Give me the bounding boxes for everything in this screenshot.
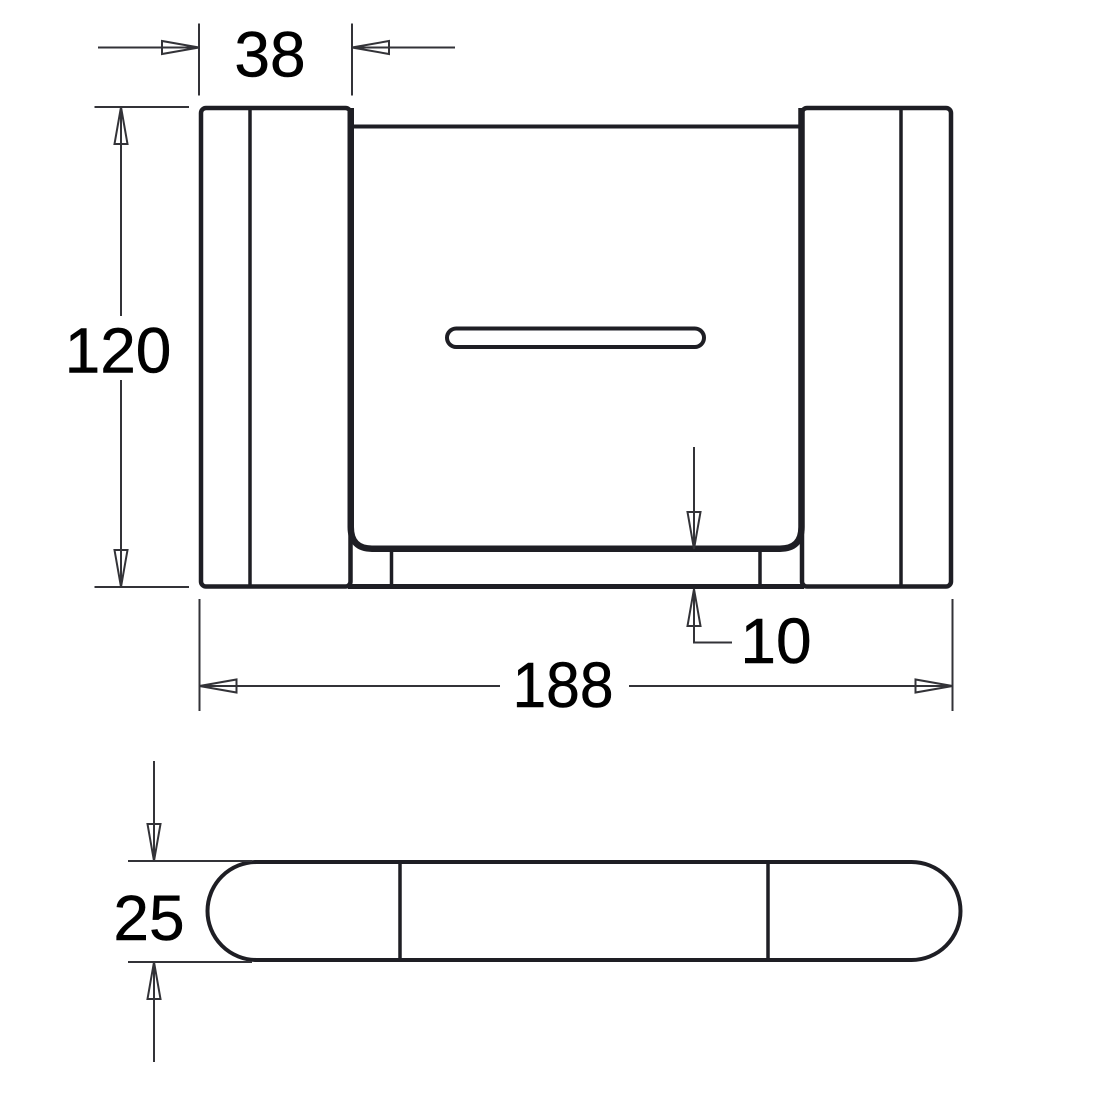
svg-text:10: 10: [740, 605, 811, 677]
svg-text:188: 188: [513, 649, 614, 721]
svg-text:120: 120: [65, 315, 172, 387]
svg-text:25: 25: [113, 882, 184, 954]
svg-text:38: 38: [234, 19, 305, 91]
